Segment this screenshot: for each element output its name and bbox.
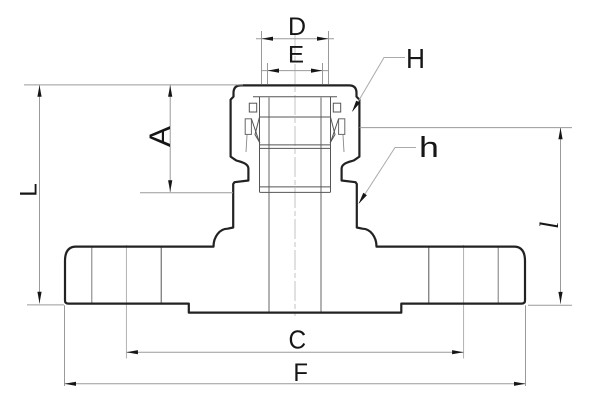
svg-text:F: F	[293, 359, 308, 387]
svg-text:A: A	[144, 126, 177, 147]
svg-text:l: l	[535, 222, 564, 229]
svg-text:L: L	[15, 183, 42, 197]
svg-text:C: C	[289, 324, 307, 354]
svg-text:H: H	[406, 43, 425, 74]
svg-text:h: h	[419, 132, 439, 164]
svg-text:E: E	[288, 42, 304, 69]
svg-text:D: D	[288, 13, 306, 41]
